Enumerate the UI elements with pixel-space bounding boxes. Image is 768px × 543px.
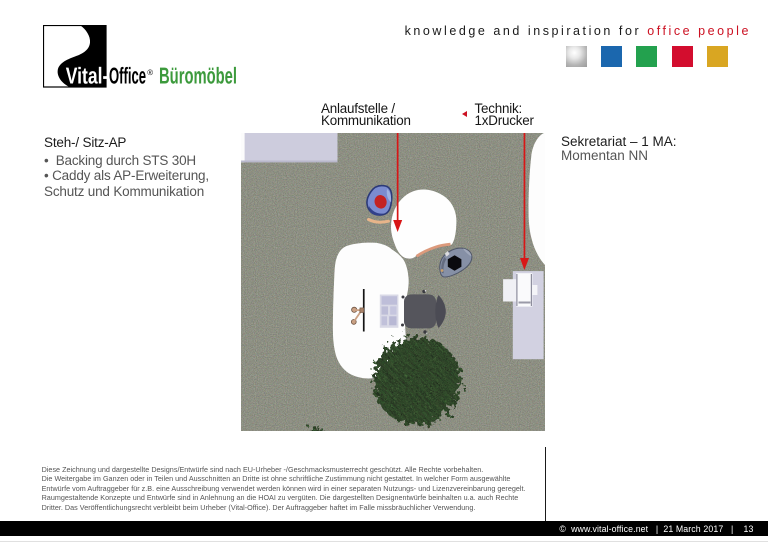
svg-text:Vital-: Vital- (66, 63, 109, 89)
svg-text:Büromöbel: Büromöbel (159, 63, 237, 89)
svg-text:Office: Office (109, 63, 146, 89)
svg-text:®: ® (147, 68, 153, 77)
